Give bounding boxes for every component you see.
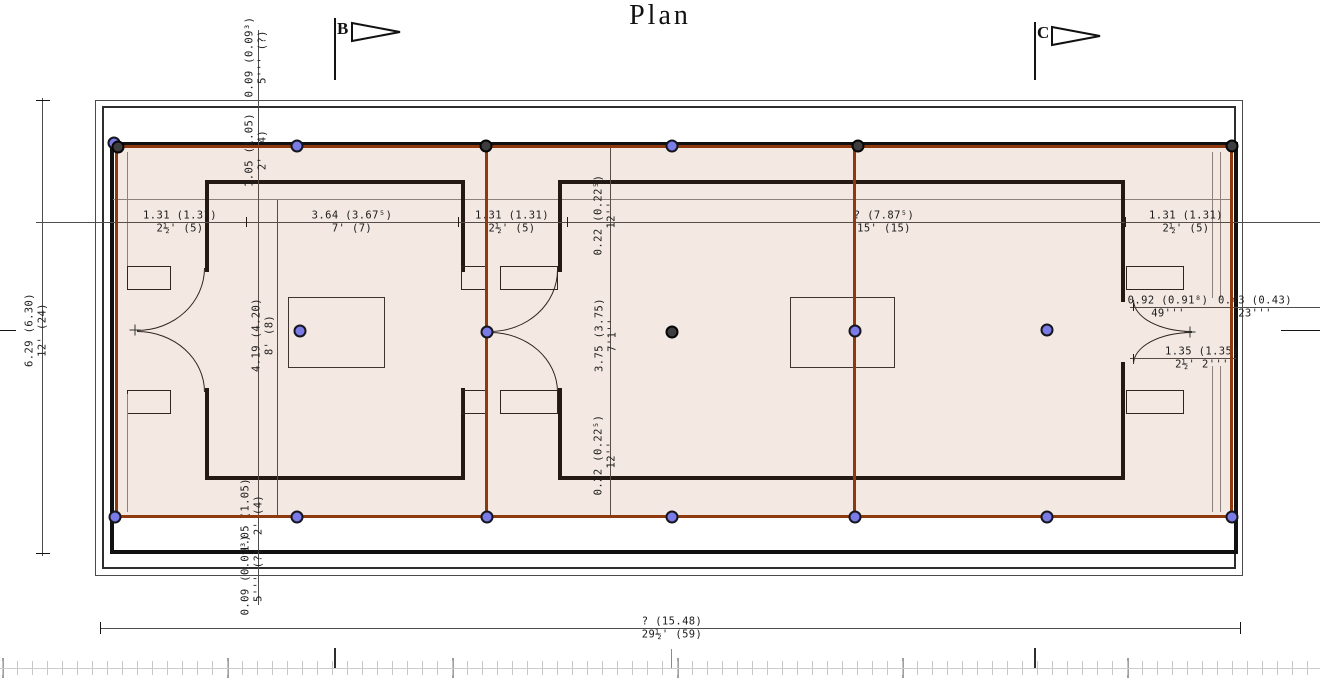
dim-wall-top-thick: 0.22 (0.22⁵)12'' — [593, 175, 618, 256]
dim-wall-bottom-thick: 0.22 (0.22⁵)12'' — [593, 415, 618, 496]
grid-node-dot-blue[interactable] — [291, 511, 304, 524]
center-mark-bottom — [671, 649, 672, 668]
grid-node-dot-blue[interactable] — [849, 511, 862, 524]
grid-node-dot-blue[interactable] — [1041, 324, 1054, 337]
section-mark-c-bottom — [1034, 648, 1036, 668]
dim-wall-right: 1.31 (1.31)2½' (5) — [1149, 210, 1223, 235]
plan-canvas: Plan B C — [0, 0, 1320, 681]
grid-node-dot-dark[interactable] — [112, 141, 125, 154]
dim-bottom-margin: 0.09 (0.09³)5''' (?) — [240, 535, 265, 616]
section-flag-icon — [351, 21, 403, 43]
grid-node-dot-blue[interactable] — [666, 511, 679, 524]
overlay-line-right[interactable] — [1230, 146, 1233, 517]
dim-door-width: 1.35 (1.35)2½' 2''' — [1165, 346, 1239, 371]
grid-node-dot-blue[interactable] — [109, 511, 122, 524]
grid-node-dot-dark[interactable] — [666, 326, 679, 339]
section-line-b — [334, 18, 336, 80]
door-cross-mark — [130, 325, 141, 336]
dim-wall-left: 1.31 (1.31)2½' (5) — [143, 210, 217, 235]
dim-room2-width: ? (7.87⁵)15' (15) — [854, 210, 915, 235]
section-label-c: C — [1037, 23, 1049, 43]
section-label-b: B — [337, 19, 348, 39]
grid-node-dot-blue[interactable] — [481, 511, 494, 524]
grid-node-dot-blue[interactable] — [1041, 511, 1054, 524]
ruler-baseline — [0, 668, 1320, 669]
grid-node-dot-dark[interactable] — [480, 140, 493, 153]
dim-top-offset: 1.05 (1.05)2' (4) — [244, 113, 269, 187]
dim-total-height: 6.29 (6.30)12' (24) — [24, 293, 49, 367]
dim-room1-depth: 4.19 (4.20)8' (8) — [251, 298, 276, 372]
overlay-line-left[interactable] — [115, 146, 118, 517]
grid-node-dot-blue[interactable] — [666, 140, 679, 153]
page-title: Plan — [629, 0, 691, 32]
section-mark-b-bottom — [334, 648, 336, 668]
grid-node-dot-blue[interactable] — [849, 325, 862, 338]
door-cross-mark — [1185, 327, 1196, 338]
section-line-c — [1034, 22, 1036, 80]
grid-node-dot-dark[interactable] — [1226, 140, 1239, 153]
grid-node-dot-blue[interactable] — [291, 140, 304, 153]
grid-node-dot-blue[interactable] — [481, 326, 494, 339]
dim-door-jamb-a: 0.92 (0.91⁸)49''' — [1128, 295, 1209, 320]
dim-room1-width: 3.64 (3.67⁵)7' (7) — [312, 210, 393, 235]
dim-top-margin: 0.09 (0.09³)5''' (?) — [244, 17, 269, 98]
grid-node-dot-blue[interactable] — [1226, 511, 1239, 524]
section-flag-icon — [1051, 25, 1103, 47]
grid-node-dot-dark[interactable] — [852, 140, 865, 153]
grid-node-dot-blue[interactable] — [294, 325, 307, 338]
dim-room2-depth: 3.75 (3.75)7'1'' — [594, 298, 619, 372]
dim-total-width: ? (15.48)29½' (59) — [642, 616, 703, 641]
